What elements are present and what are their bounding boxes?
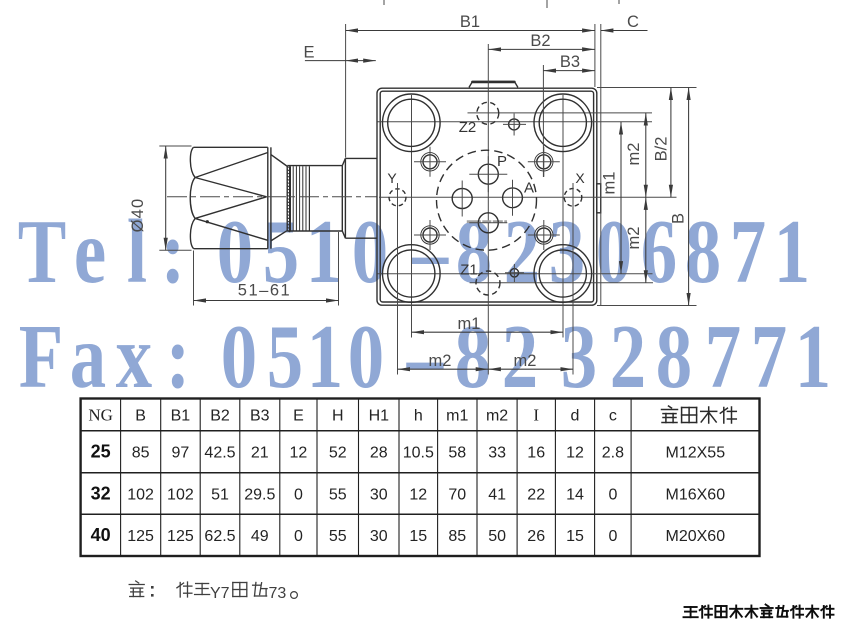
svg-text:h: h	[414, 407, 423, 424]
svg-text:125: 125	[127, 528, 154, 545]
svg-text:I: I	[533, 405, 539, 424]
svg-text:m2: m2	[625, 227, 643, 250]
svg-text:Z2: Z2	[459, 119, 477, 136]
svg-text:12: 12	[409, 486, 427, 503]
svg-text:49: 49	[251, 528, 269, 545]
svg-text:12: 12	[566, 445, 584, 462]
svg-text:55: 55	[329, 486, 347, 503]
svg-text:m1: m1	[446, 407, 468, 424]
svg-text:M16X60: M16X60	[666, 486, 726, 503]
svg-text:P: P	[497, 153, 507, 170]
svg-text:32: 32	[91, 483, 111, 503]
svg-text:m2: m2	[625, 143, 643, 166]
svg-text:M12X55: M12X55	[666, 445, 726, 462]
svg-text:0: 0	[608, 528, 617, 545]
svg-text:NG: NG	[88, 405, 113, 424]
svg-text:70: 70	[448, 486, 466, 503]
svg-text:25: 25	[91, 442, 111, 462]
svg-text:10.5: 10.5	[403, 445, 434, 462]
svg-text:C: C	[627, 13, 639, 31]
svg-text:102: 102	[127, 486, 154, 503]
svg-text:26: 26	[527, 528, 545, 545]
svg-text:58: 58	[448, 445, 466, 462]
svg-text:51–61: 51–61	[238, 282, 291, 300]
svg-text:B3: B3	[560, 53, 580, 71]
svg-text:21: 21	[251, 445, 269, 462]
svg-text:125: 125	[167, 528, 194, 545]
svg-text:X: X	[575, 170, 585, 186]
svg-text:0: 0	[294, 486, 303, 503]
svg-text:2.8: 2.8	[602, 445, 624, 462]
svg-text:22: 22	[527, 486, 545, 503]
svg-text:0: 0	[608, 486, 617, 503]
svg-text:B: B	[135, 407, 146, 424]
svg-text:m1: m1	[601, 172, 619, 195]
svg-text:85: 85	[132, 445, 150, 462]
svg-text:m2: m2	[486, 407, 508, 424]
svg-text:Ø40: Ø40	[129, 198, 147, 233]
svg-text:15: 15	[566, 528, 584, 545]
svg-text:B2: B2	[210, 407, 230, 424]
svg-text:51: 51	[211, 486, 229, 503]
svg-text:B1: B1	[171, 407, 191, 424]
svg-text:28: 28	[370, 445, 388, 462]
svg-text:m1: m1	[458, 315, 481, 333]
svg-text:Y7: Y7	[210, 585, 230, 602]
svg-text:A: A	[524, 180, 534, 197]
svg-text:B1: B1	[460, 13, 480, 31]
svg-text:97: 97	[172, 445, 190, 462]
svg-text:c: c	[609, 407, 617, 424]
svg-text:Z1: Z1	[460, 262, 478, 279]
svg-text:30: 30	[370, 528, 388, 545]
svg-text:E: E	[303, 44, 314, 62]
svg-text:40: 40	[91, 525, 111, 545]
svg-text:55: 55	[329, 528, 347, 545]
svg-text:30: 30	[370, 486, 388, 503]
svg-text:0: 0	[294, 528, 303, 545]
svg-text:14: 14	[566, 486, 584, 503]
svg-text:B: B	[670, 213, 688, 224]
svg-text:H1: H1	[369, 407, 390, 424]
svg-text:H: H	[332, 407, 344, 424]
svg-text:Y: Y	[387, 170, 397, 186]
svg-text:B2: B2	[530, 32, 550, 50]
svg-text:62.5: 62.5	[204, 528, 235, 545]
svg-text:M20X60: M20X60	[666, 528, 726, 545]
svg-text:12: 12	[290, 445, 308, 462]
svg-text:m2: m2	[514, 352, 537, 370]
svg-text:16: 16	[527, 445, 545, 462]
svg-text:E: E	[293, 407, 304, 424]
svg-text:73: 73	[269, 585, 287, 602]
svg-text:d: d	[571, 407, 580, 424]
svg-text:33: 33	[488, 445, 506, 462]
svg-text:85: 85	[448, 528, 466, 545]
svg-text:52: 52	[329, 445, 347, 462]
svg-text:B3: B3	[250, 407, 270, 424]
svg-text:m2: m2	[429, 352, 452, 370]
svg-text:29.5: 29.5	[244, 486, 275, 503]
svg-text:42.5: 42.5	[204, 445, 235, 462]
svg-text:50: 50	[488, 528, 506, 545]
svg-text:B/2: B/2	[653, 137, 671, 162]
svg-text:15: 15	[409, 528, 427, 545]
svg-text:41: 41	[488, 486, 506, 503]
svg-text:102: 102	[167, 486, 194, 503]
